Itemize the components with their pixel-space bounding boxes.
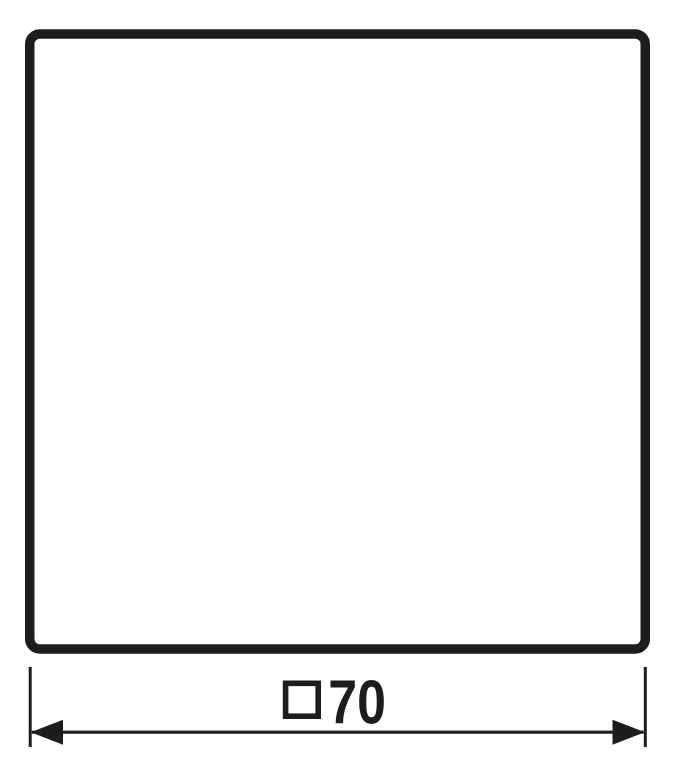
svg-text:70: 70 xyxy=(328,668,386,738)
